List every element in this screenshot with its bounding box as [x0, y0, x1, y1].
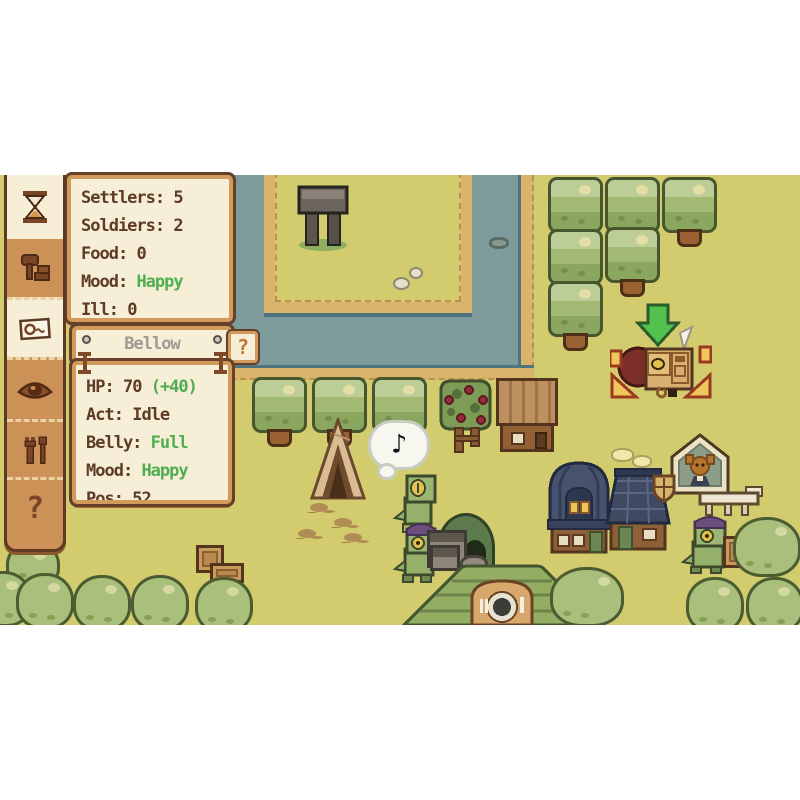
lumber-shed-wall[interactable] — [500, 423, 554, 452]
stat-row-soldiers: Soldiers: 2 — [71, 212, 229, 240]
lumber-shed-roof[interactable] — [496, 378, 558, 426]
crate-panel — [216, 569, 238, 577]
sidebar-toolbar: ? — [4, 175, 66, 552]
tent[interactable] — [310, 418, 366, 502]
bush — [550, 567, 624, 625]
unit-row-act: Act: Idle — [76, 401, 228, 429]
tree-trunk — [677, 229, 702, 247]
tree-trunk — [267, 429, 292, 447]
unit-row-mood: Mood: Happy — [76, 457, 228, 485]
question-icon: ? — [26, 491, 44, 526]
unit-panel-body: HP: 70 (+40) Act: Idle Belly: Full Mood:… — [72, 361, 232, 504]
dirt-patch — [334, 518, 352, 527]
bush — [686, 577, 744, 625]
tree-canopy — [548, 229, 603, 285]
stat-row-mood: Mood: Happy — [71, 268, 229, 296]
shed-door — [535, 432, 547, 449]
apple-tree[interactable] — [433, 378, 497, 454]
bush — [73, 575, 131, 625]
sidebar-button-help[interactable]: ? — [7, 477, 63, 537]
sidebar-button-view[interactable] — [7, 357, 63, 419]
screenshot-root: { "ui": { "sidebar": { "buttons": [ {"id… — [0, 0, 800, 800]
resize-handle-right[interactable] — [214, 352, 227, 374]
bench[interactable] — [698, 485, 764, 519]
eye-icon — [17, 379, 53, 401]
speech-bubble: ♪ — [368, 420, 430, 470]
unit-row-pos: Pos: 52 — [76, 485, 228, 504]
unit-row-belly: Belly: Full — [76, 429, 228, 457]
stone-ruin[interactable] — [296, 183, 350, 251]
sidebar-button-log[interactable] — [7, 297, 63, 357]
hammer-bricks-icon — [18, 253, 52, 283]
help-question-label: ? — [237, 335, 249, 359]
sidebar-button-build[interactable] — [7, 239, 63, 297]
screw-icon — [213, 335, 222, 344]
tools-icon — [20, 435, 50, 465]
tree-canopy — [605, 227, 660, 283]
bush — [16, 573, 74, 625]
unit-row-hp: HP: 70 (+40) — [76, 373, 228, 401]
water-rock — [489, 237, 509, 249]
shield-icon — [650, 473, 678, 503]
pebble — [409, 267, 423, 279]
sidebar-button-tools[interactable] — [7, 419, 63, 477]
stat-row-ill: Ill: 0 — [71, 296, 229, 324]
house-thatched[interactable] — [546, 458, 612, 554]
coin — [611, 448, 634, 462]
bush — [746, 577, 800, 625]
pebble — [393, 277, 410, 290]
unit-help-button[interactable]: ? — [228, 331, 258, 363]
resize-handle-left[interactable] — [78, 352, 91, 374]
tree-canopy — [252, 377, 307, 433]
coin — [632, 455, 652, 468]
tree-trunk — [563, 333, 588, 351]
hourglass-icon — [22, 191, 48, 223]
screw-icon — [82, 335, 91, 344]
tree-canopy — [548, 281, 603, 337]
pond-bank-right — [518, 175, 534, 378]
stats-panel: Settlers: 5 Soldiers: 2 Food: 0 Mood: Ha… — [67, 175, 233, 322]
music-note-icon: ♪ — [391, 429, 407, 460]
tree-trunk — [620, 279, 645, 297]
bush — [131, 575, 189, 625]
bush — [195, 577, 253, 625]
dirt-patch — [310, 503, 328, 512]
tree-canopy — [605, 177, 660, 233]
unit-panel-titlebar[interactable]: Bellow — [72, 326, 232, 363]
unit-name-title: Bellow — [124, 334, 179, 354]
shed-window — [511, 432, 525, 445]
dirt-patch — [298, 529, 316, 538]
sidebar-button-time[interactable] — [7, 175, 63, 239]
dirt-patch — [344, 533, 362, 542]
selected-unit-bellow[interactable] — [610, 303, 712, 403]
bush — [733, 517, 800, 577]
scroll-icon — [19, 317, 51, 341]
tree-canopy — [548, 177, 603, 233]
tree-canopy — [662, 177, 717, 233]
stat-row-food: Food: 0 — [71, 240, 229, 268]
stat-row-settlers: Settlers: 5 — [71, 184, 229, 212]
